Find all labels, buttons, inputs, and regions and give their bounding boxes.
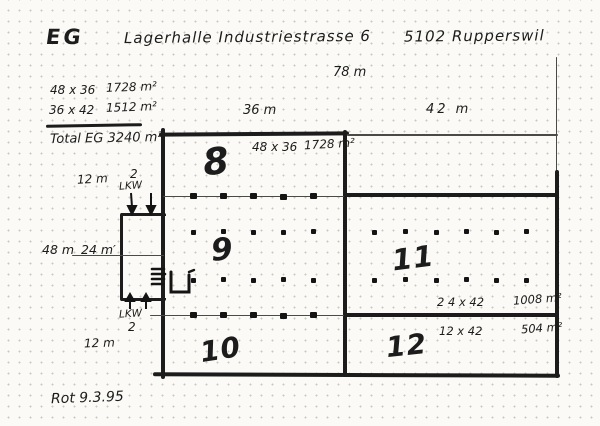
column-dot (524, 278, 529, 283)
room-number-10: 10 (198, 330, 244, 369)
column-dot (464, 229, 469, 234)
column-dot (524, 229, 529, 234)
column-dot (251, 278, 256, 283)
wall-top-right-section (347, 134, 558, 136)
column-dot (221, 277, 226, 282)
column-marker (220, 312, 227, 318)
room-number-9: 9 (210, 231, 235, 268)
lkw-arrows-down-icon (124, 193, 160, 215)
column-dot (372, 230, 377, 235)
column-dot (191, 230, 196, 235)
column-dot (434, 278, 439, 283)
column-marker (190, 193, 197, 199)
wall-room11-top (345, 193, 558, 197)
floor-title: EG (44, 25, 85, 49)
extension-line-right (556, 57, 557, 172)
room8-dims-label: 48 x 36 (252, 140, 297, 154)
column-marker (190, 312, 197, 318)
dim-left-width: 36 m (243, 103, 276, 118)
dim-top-band: 12 m (77, 171, 108, 187)
calc-row1-dims: 48 x 36 (50, 83, 95, 97)
room8-area-label: 1728 m² (304, 136, 356, 153)
column-dot (311, 278, 316, 283)
lkw-bottom-label: LKW (119, 307, 143, 320)
column-marker (280, 313, 287, 319)
room-number-12: 12 (384, 327, 428, 364)
wall-room11-bottom (345, 313, 558, 317)
calc-row2-dims: 36 x 42 (49, 103, 94, 117)
calc-row1-area: 1728 m² (106, 79, 157, 95)
column-dot (281, 230, 286, 235)
room-number-8: 8 (201, 139, 232, 185)
project-city: 5102 Rupperswil (404, 26, 545, 45)
room11-dims-label: 2 4 x 42 (437, 295, 484, 309)
dim-bottom-band: 12 m (84, 335, 115, 350)
room12-area-label: 504 m² (521, 320, 563, 337)
lkw-bottom-count: 2 (128, 320, 136, 334)
lkw-top-label: LKW (119, 179, 143, 193)
column-dot (494, 230, 499, 235)
dim-total-width: 78 m (333, 65, 366, 80)
room12-dims-label: 12 x 42 (439, 324, 482, 338)
dim-building-height: 48 m (42, 242, 74, 257)
dim-right-width: 42 m (426, 102, 471, 117)
sketch-page: EG Lagerhalle Industriestrasse 6 5102 Ru… (0, 0, 600, 426)
column-dot (311, 229, 316, 234)
calc-row2-area: 1512 m² (106, 99, 157, 115)
room-number-11: 11 (390, 239, 436, 278)
calc-total: Total EG 3240 m² (50, 130, 163, 147)
wall-divider-center (343, 130, 347, 377)
wall-right (555, 170, 559, 378)
column-dot (434, 230, 439, 235)
calc-sum-line (46, 123, 142, 127)
column-marker (310, 312, 317, 318)
column-dot (251, 230, 256, 235)
column-marker (280, 194, 287, 200)
project-title: Lagerhalle Industriestrasse 6 (124, 27, 371, 47)
wall-bottom (153, 372, 560, 377)
column-dot (464, 277, 469, 282)
wall-top-left-section (159, 131, 349, 136)
half-height-dim-line (72, 255, 164, 256)
column-marker (250, 312, 257, 318)
column-dot (403, 229, 408, 234)
column-marker (250, 193, 257, 199)
column-dot (494, 278, 499, 283)
column-dot (281, 277, 286, 282)
date-note: Rot 9.3.95 (51, 389, 124, 408)
column-dot (403, 277, 408, 282)
column-marker (220, 193, 227, 199)
column-dot (372, 278, 377, 283)
column-marker (310, 193, 317, 199)
